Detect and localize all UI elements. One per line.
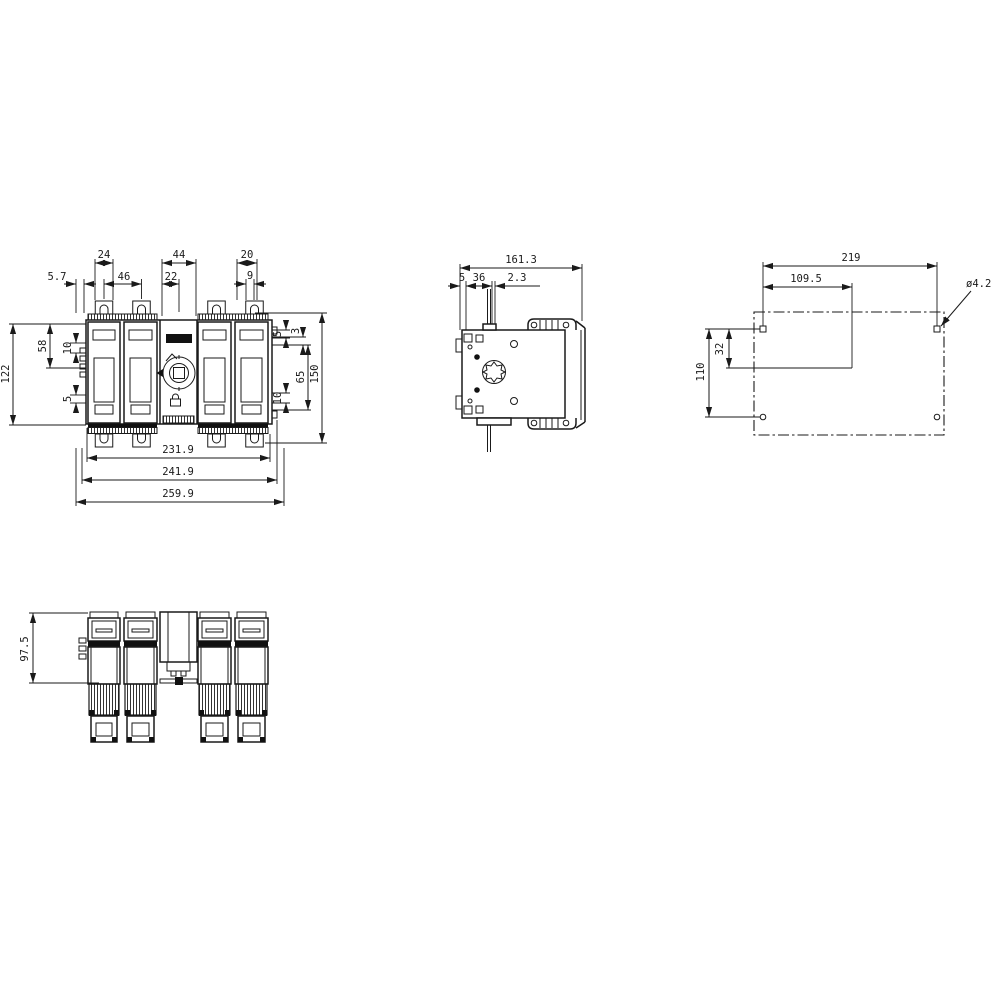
terminal-comb-bottom-left xyxy=(88,428,157,434)
dim-front-inner-width: 231.9 xyxy=(162,444,194,456)
dim-front-body-height: 122 xyxy=(0,365,12,384)
dim-front-mid-width: 241.9 xyxy=(162,466,194,478)
dim-front-right-lower-small: 10 xyxy=(272,392,284,405)
mounting-hole-bottom-right xyxy=(934,414,940,420)
dim-front-left-upper-small: 10 xyxy=(62,342,74,355)
terminal-comb-bottom-right xyxy=(198,428,268,434)
fuse-module-4 xyxy=(235,322,268,423)
side-view: 161.3 5 36 2.3 xyxy=(448,254,585,452)
dim-front-pole-pitch: 46 xyxy=(118,271,131,283)
bottom-module-3 xyxy=(198,612,231,742)
rating-label xyxy=(166,334,192,343)
fuse-module-2 xyxy=(124,322,157,423)
fuse-module-3 xyxy=(198,322,231,423)
bottom-view-dimensions: 97.5 xyxy=(19,613,99,683)
side-view-device xyxy=(456,289,585,452)
front-view: 24 44 20 5.7 46 22 9 122 xyxy=(0,249,327,506)
mounting-plate-outline xyxy=(754,312,944,435)
drilling-plan: 219 109.5 110 32 ø4.2 xyxy=(695,252,991,435)
bottom-module-2 xyxy=(124,612,157,742)
dim-side-overall-depth: 161.3 xyxy=(505,254,537,266)
dim-front-left-lower-small: 5 xyxy=(62,396,74,402)
dim-front-center-to-bottom: 65 xyxy=(295,371,307,384)
front-view-device xyxy=(80,301,277,447)
dim-drill-horizontal-pitch: 219 xyxy=(842,252,861,264)
mounting-hole-top-right xyxy=(934,326,940,332)
bottom-center-column xyxy=(160,612,197,685)
dim-drill-vertical-pitch: 110 xyxy=(695,363,707,382)
dim-drill-hole-diameter: ø4.2 xyxy=(966,278,991,290)
dim-bottom-body-depth: 97.5 xyxy=(19,636,31,661)
drawing-page: 24 44 20 5.7 46 22 9 122 xyxy=(0,0,1000,1000)
bottom-module-4 xyxy=(235,612,268,742)
dim-front-overall-height: 150 xyxy=(309,365,321,384)
terminal-comb-top-right xyxy=(198,314,268,320)
mounting-hole-top-left xyxy=(760,326,766,332)
dim-side-front-offset: 5 xyxy=(459,272,465,284)
mounting-hole-bottom-left xyxy=(760,414,766,420)
dim-side-terminal-depth: 36 xyxy=(473,272,486,284)
dim-front-center-width: 44 xyxy=(173,249,186,261)
dim-side-plate-thickness: 2.3 xyxy=(508,272,527,284)
bottom-module-1 xyxy=(88,612,120,742)
dim-front-step: 3 xyxy=(290,328,302,334)
dim-front-overall-width: 259.9 xyxy=(162,488,194,500)
dim-front-tab-width: 20 xyxy=(241,249,254,261)
dim-front-right-upper-small: 5 xyxy=(272,331,284,337)
bottom-view: 97.5 xyxy=(19,612,268,742)
dim-drill-horizontal-half: 109.5 xyxy=(790,273,822,285)
dim-front-center-offset: 22 xyxy=(165,271,178,283)
dim-front-edge-offset: 5.7 xyxy=(48,271,67,283)
drawing-canvas: 24 44 20 5.7 46 22 9 122 xyxy=(0,0,1000,1000)
dim-drill-vertical-offset: 32 xyxy=(714,343,726,356)
dim-front-pole-width: 24 xyxy=(98,249,111,261)
bottom-view-device xyxy=(79,612,268,742)
terminal-strip xyxy=(163,416,194,423)
fuse-module-1 xyxy=(88,322,120,423)
dim-front-top-to-center: 58 xyxy=(37,340,49,353)
drilling-plan-dimensions: 219 109.5 110 32 ø4.2 xyxy=(695,252,991,417)
terminal-comb-top-left xyxy=(88,314,157,320)
dim-front-tab-offset: 9 xyxy=(247,270,253,282)
